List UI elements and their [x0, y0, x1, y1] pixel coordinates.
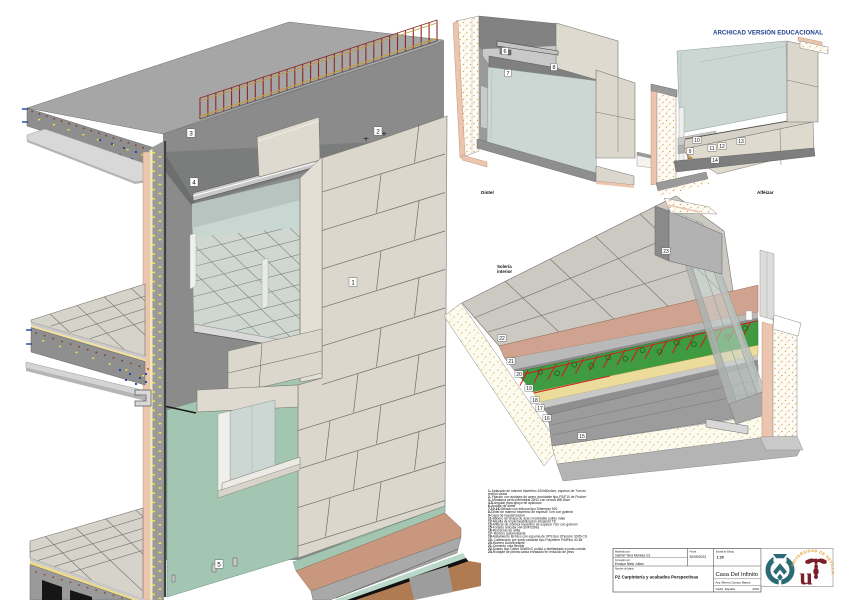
svg-text:10: 10	[694, 138, 700, 144]
svg-text:21: 21	[508, 359, 514, 365]
svg-text:Gabriel Tena Morales G1: Gabriel Tena Morales G1	[615, 554, 651, 558]
svg-text:30/09/2023: 30/09/2023	[690, 555, 707, 559]
svg-text:23-Rodapié de piedra caliza en: 23-Rodapié de piedra caliza enrasado en …	[488, 550, 574, 554]
svg-text:6: 6	[504, 49, 507, 55]
svg-text:Nombre del plano: Nombre del plano	[615, 568, 635, 571]
svg-text:20: 20	[516, 372, 522, 378]
svg-text:2016: 2016	[752, 587, 759, 591]
svg-text:23: 23	[663, 249, 669, 255]
svg-text:Dintel: Dintel	[481, 190, 494, 195]
svg-text:P2 Carpintería y acabados Pers: P2 Carpintería y acabados Perspectivas	[615, 575, 699, 580]
svg-text:12: 12	[719, 144, 725, 150]
svg-text:Fecha: Fecha	[690, 550, 697, 553]
svg-text:8: 8	[553, 65, 556, 71]
svg-text:17: 17	[537, 406, 543, 412]
svg-text:Escala de Dibujo: Escala de Dibujo	[716, 550, 735, 553]
svg-text:Cadiz, España: Cadiz, España	[716, 587, 736, 591]
svg-text:22: 22	[499, 336, 505, 342]
svg-text:4: 4	[192, 179, 196, 186]
svg-text:16: 16	[544, 416, 550, 422]
svg-text:Alféizar: Alféizar	[757, 190, 774, 195]
svg-text:Arq.Alberto Campo Baeza: Arq.Alberto Campo Baeza	[716, 580, 751, 584]
svg-text:9: 9	[689, 149, 692, 155]
svg-text:3: 3	[189, 130, 193, 137]
svg-text:u: u	[799, 565, 812, 591]
svg-text:13: 13	[738, 139, 744, 145]
svg-text:2: 2	[376, 128, 380, 135]
svg-text:Casa Del Infinito: Casa Del Infinito	[716, 572, 759, 578]
svg-text:1:20: 1:20	[717, 556, 724, 560]
svg-text:5: 5	[217, 561, 221, 568]
svg-text:interior: interior	[497, 269, 512, 274]
svg-text:1: 1	[351, 279, 355, 286]
svg-text:18: 18	[532, 398, 538, 404]
svg-text:15: 15	[579, 434, 585, 440]
svg-text:7: 7	[507, 71, 510, 77]
svg-text:14: 14	[712, 158, 718, 164]
svg-text:Enrique Nieto Julian: Enrique Nieto Julian	[615, 562, 644, 566]
svg-text:11: 11	[709, 146, 714, 152]
svg-text:ARCHICAD VERSIÓN EDUCACIONAL: ARCHICAD VERSIÓN EDUCACIONAL	[713, 29, 823, 37]
svg-text:19: 19	[526, 386, 532, 392]
